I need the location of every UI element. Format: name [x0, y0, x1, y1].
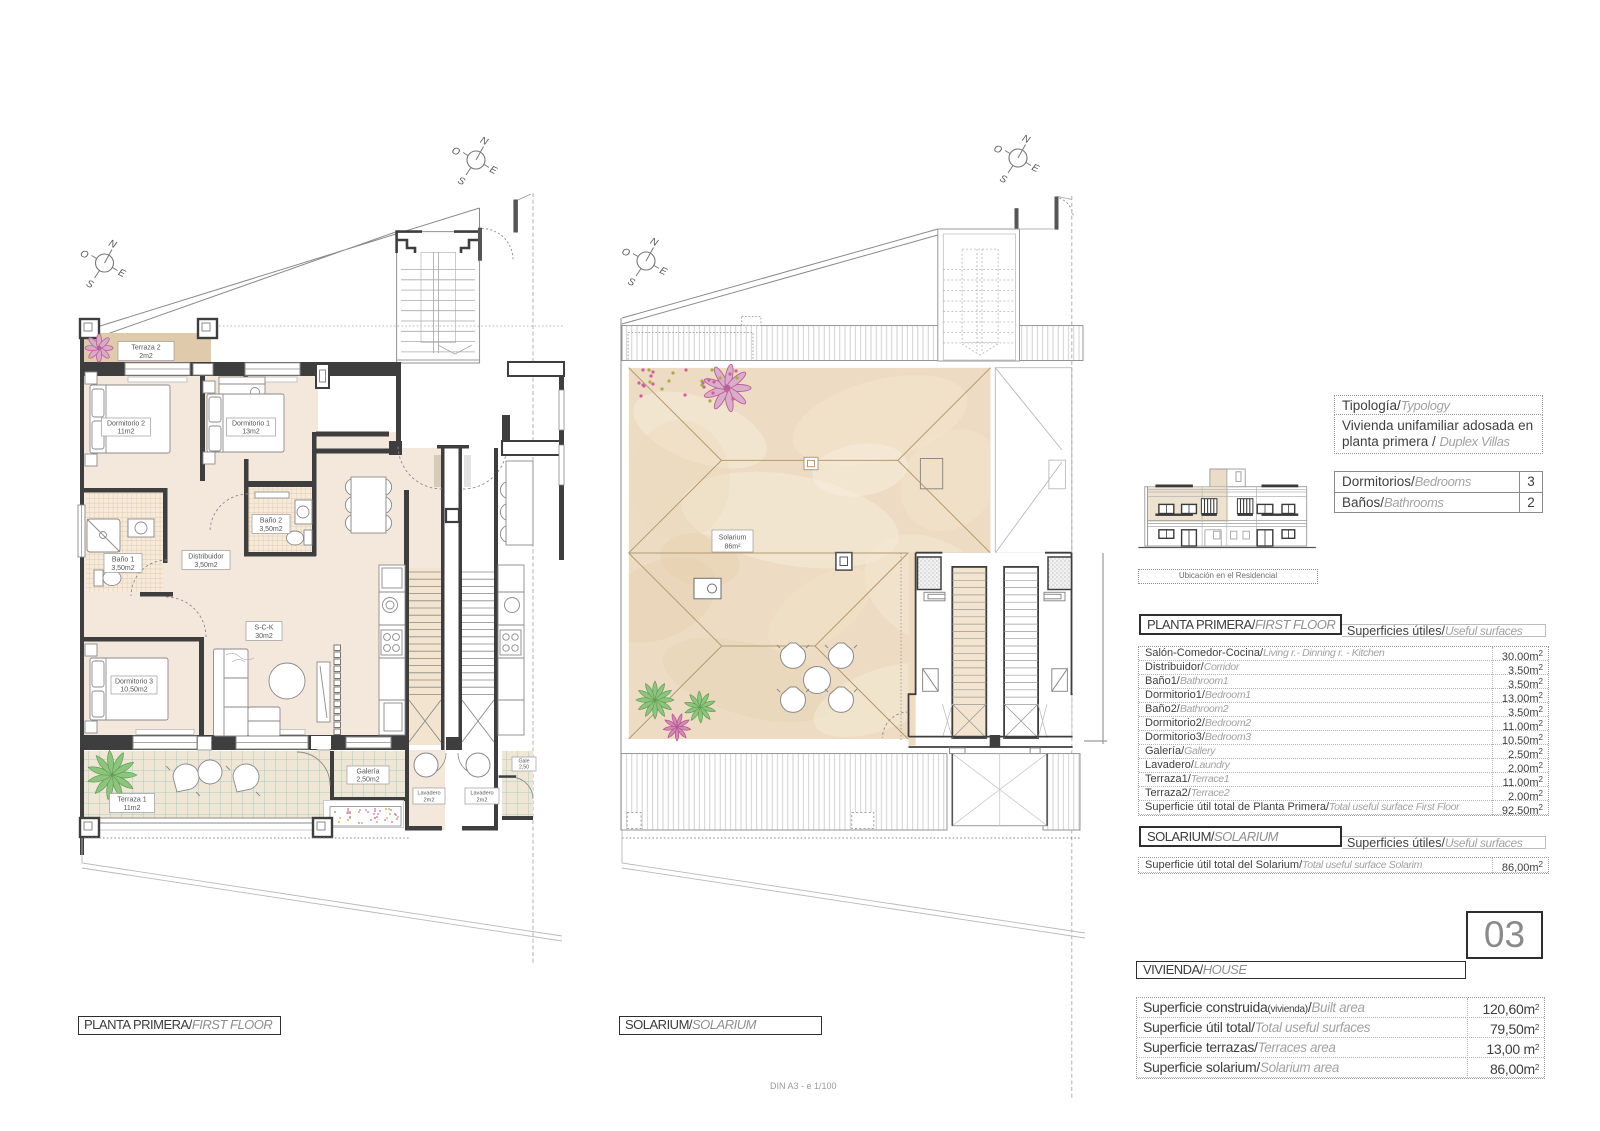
svg-text:2m2: 2m2: [424, 798, 435, 804]
svg-text:N: N: [1020, 133, 1032, 146]
svg-text:3,50m2: 3,50m2: [259, 526, 282, 533]
svg-text:Baño 1: Baño 1: [112, 557, 134, 564]
svg-text:Dormitorio 2: Dormitorio 2: [107, 421, 145, 428]
svg-text:N: N: [107, 238, 119, 251]
svg-text:3,50m2: 3,50m2: [194, 562, 217, 569]
svg-text:O: O: [450, 145, 462, 158]
svg-text:N: N: [478, 135, 490, 148]
svg-text:Lavadero: Lavadero: [470, 791, 493, 797]
svg-text:O: O: [992, 143, 1004, 156]
svg-text:Distribuidor: Distribuidor: [188, 554, 224, 561]
svg-text:Dormitorio 1: Dormitorio 1: [232, 421, 270, 428]
svg-text:3,50m2: 3,50m2: [111, 565, 134, 572]
svg-text:N: N: [648, 236, 660, 249]
svg-text:S: S: [84, 278, 95, 291]
svg-text:11m2: 11m2: [118, 429, 135, 436]
svg-text:E: E: [1030, 162, 1041, 175]
svg-text:Galería: Galería: [357, 769, 380, 776]
svg-text:86m²: 86m²: [725, 544, 742, 551]
svg-text:S: S: [998, 173, 1009, 186]
svg-text:Terraza 2: Terraza 2: [131, 345, 160, 352]
svg-text:Baño 2: Baño 2: [260, 518, 282, 525]
svg-text:2m2: 2m2: [477, 798, 488, 804]
svg-text:O: O: [78, 248, 90, 261]
svg-text:E: E: [658, 265, 669, 278]
svg-text:Solarium: Solarium: [719, 535, 747, 542]
svg-text:10,50m2: 10,50m2: [120, 687, 147, 694]
svg-text:O: O: [620, 246, 632, 259]
svg-text:S: S: [456, 175, 467, 188]
svg-text:2,50: 2,50: [519, 765, 529, 771]
svg-text:13m2: 13m2: [242, 429, 260, 436]
svg-text:11m2: 11m2: [124, 805, 141, 812]
svg-text:S-C-K: S-C-K: [254, 625, 273, 632]
svg-text:S: S: [626, 276, 637, 289]
svg-text:2m2: 2m2: [139, 353, 153, 360]
svg-text:Lavadero: Lavadero: [417, 791, 440, 797]
svg-text:Dormitorio 3: Dormitorio 3: [115, 679, 153, 686]
svg-text:E: E: [488, 164, 499, 177]
svg-text:30m2: 30m2: [255, 633, 273, 640]
svg-text:2,50m2: 2,50m2: [356, 777, 379, 784]
svg-text:Terraza 1: Terraza 1: [117, 797, 146, 804]
svg-text:E: E: [116, 267, 127, 280]
